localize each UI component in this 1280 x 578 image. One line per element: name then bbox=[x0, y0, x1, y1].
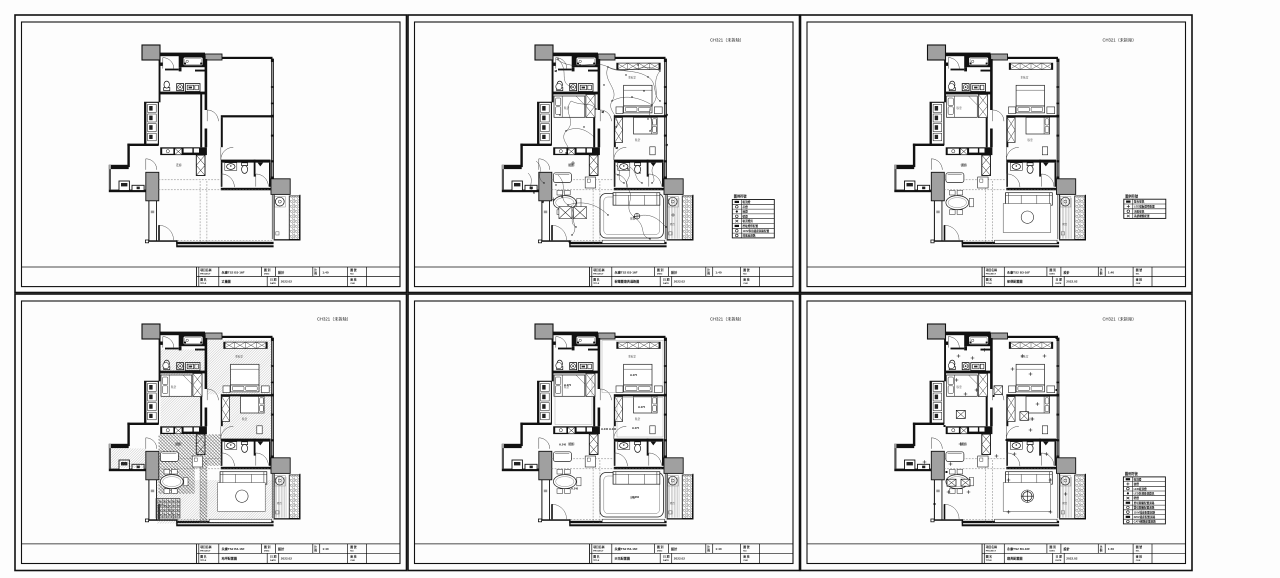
svg-text:吸頂燈: 吸頂燈 bbox=[1134, 477, 1142, 481]
svg-text:設計: 設計 bbox=[278, 269, 285, 274]
svg-text:設計: 設計 bbox=[278, 546, 285, 551]
svg-text:2022.02: 2022.02 bbox=[674, 280, 685, 284]
svg-text:圖 號: 圖 號 bbox=[1136, 545, 1143, 549]
svg-text:LED層板燈帶配置: LED層板燈帶配置 bbox=[1134, 205, 1155, 209]
svg-text:圖 別: 圖 別 bbox=[264, 268, 271, 272]
svg-text:TITLE: TITLE bbox=[593, 283, 600, 285]
svg-text:H.240: H.240 bbox=[609, 427, 617, 431]
svg-text:比: 比 bbox=[1100, 268, 1103, 272]
svg-text:NO.: NO. bbox=[743, 551, 747, 553]
svg-text:系統櫃體配置: 系統櫃體配置 bbox=[1134, 214, 1150, 218]
svg-text:NO.: NO. bbox=[743, 274, 747, 276]
svg-text:比: 比 bbox=[314, 545, 317, 549]
svg-text:審 核: 審 核 bbox=[742, 278, 750, 282]
svg-text:圖 別: 圖 別 bbox=[657, 545, 664, 549]
svg-text:永康TS2 B3-16F: 永康TS2 B3-16F bbox=[221, 546, 245, 551]
svg-text:吸頂燈: 吸頂燈 bbox=[743, 200, 751, 204]
svg-text:H.260: H.260 bbox=[632, 495, 640, 499]
svg-text:圖 號: 圖 號 bbox=[743, 545, 750, 549]
svg-text:項目名稱: 項目名稱 bbox=[200, 268, 211, 272]
svg-text:設計: 設計 bbox=[1064, 269, 1071, 274]
svg-text:嵌燈: 嵌燈 bbox=[1134, 482, 1140, 486]
svg-text:項目名稱: 項目名稱 bbox=[593, 545, 604, 549]
svg-text:TITLE: TITLE bbox=[986, 283, 993, 285]
svg-text:DWG: DWG bbox=[264, 274, 270, 276]
svg-text:110V專用插座迴路配置: 110V專用插座迴路配置 bbox=[743, 229, 770, 233]
svg-text:圖 名: 圖 名 bbox=[593, 278, 600, 282]
svg-text:2022.02: 2022.02 bbox=[281, 557, 292, 561]
svg-text:圖例符號: 圖例符號 bbox=[1125, 471, 1139, 476]
svg-text:NO.: NO. bbox=[350, 551, 354, 553]
svg-text:審 核: 審 核 bbox=[349, 278, 357, 282]
svg-text:圖 別: 圖 別 bbox=[1050, 545, 1057, 549]
svg-text:日 期: 日 期 bbox=[1056, 554, 1063, 558]
svg-text:例: 例 bbox=[707, 549, 710, 553]
svg-text:圖 號: 圖 號 bbox=[350, 545, 357, 549]
svg-text:日 期: 日 期 bbox=[663, 554, 670, 558]
svg-text:H.275: H.275 bbox=[632, 426, 640, 430]
svg-text:比: 比 bbox=[707, 268, 710, 272]
svg-text:比: 比 bbox=[1100, 545, 1103, 549]
svg-text:CHK: CHK bbox=[350, 283, 355, 285]
svg-text:圖 名: 圖 名 bbox=[593, 554, 600, 558]
svg-text:CH321（未拆除）: CH321（未拆除） bbox=[1103, 316, 1137, 323]
svg-text:1:40: 1:40 bbox=[715, 270, 721, 274]
svg-text:圖 名: 圖 名 bbox=[986, 278, 993, 282]
svg-text:審 核: 審 核 bbox=[1135, 554, 1143, 558]
svg-text:H.240: H.240 bbox=[571, 487, 579, 491]
svg-text:項目名稱: 項目名稱 bbox=[593, 268, 604, 272]
svg-text:圖 別: 圖 別 bbox=[264, 545, 271, 549]
svg-text:壁燈: 壁燈 bbox=[1134, 496, 1140, 500]
svg-text:排風扇迴路: 排風扇迴路 bbox=[743, 234, 756, 238]
svg-text:2022.02: 2022.02 bbox=[1066, 557, 1077, 561]
svg-text:DWG: DWG bbox=[1050, 551, 1056, 553]
svg-text:DATE: DATE bbox=[270, 559, 276, 562]
svg-text:CH321（未拆除）: CH321（未拆除） bbox=[710, 37, 744, 44]
svg-text:DATE: DATE bbox=[1056, 559, 1062, 562]
svg-text:永康TS2 B3-16F: 永康TS2 B3-16F bbox=[614, 546, 638, 551]
svg-text:例: 例 bbox=[314, 549, 317, 553]
svg-text:CHK: CHK bbox=[1136, 283, 1141, 285]
svg-text:CHK: CHK bbox=[743, 560, 748, 562]
svg-text:CH321（未拆除）: CH321（未拆除） bbox=[710, 316, 744, 323]
svg-text:天花配置圖: 天花配置圖 bbox=[615, 556, 630, 561]
svg-text:圖 名: 圖 名 bbox=[200, 554, 207, 558]
svg-text:設計: 設計 bbox=[671, 269, 678, 274]
svg-text:CH321（未拆除）: CH321（未拆除） bbox=[1103, 37, 1137, 44]
svg-text:項目名稱: 項目名稱 bbox=[200, 545, 211, 549]
svg-text:項目名稱: 項目名稱 bbox=[986, 545, 997, 549]
svg-text:壁燈: 壁燈 bbox=[743, 214, 749, 218]
svg-text:2022.02: 2022.02 bbox=[281, 280, 292, 284]
svg-text:CHK: CHK bbox=[350, 560, 355, 562]
svg-text:地坪配置圖: 地坪配置圖 bbox=[222, 556, 237, 561]
svg-text:DATE: DATE bbox=[270, 282, 276, 285]
svg-text:活動傢俱: 活動傢俱 bbox=[1134, 209, 1145, 213]
svg-text:DWG: DWG bbox=[657, 274, 663, 276]
svg-text:2022.02: 2022.02 bbox=[674, 557, 685, 561]
svg-text:1:40: 1:40 bbox=[1108, 547, 1114, 551]
svg-text:日 期: 日 期 bbox=[663, 278, 670, 282]
svg-text:例: 例 bbox=[707, 272, 710, 276]
svg-text:1:40: 1:40 bbox=[322, 547, 328, 551]
svg-text:項目名稱: 項目名稱 bbox=[986, 268, 997, 272]
svg-text:PROJECT: PROJECT bbox=[200, 551, 211, 553]
svg-text:H.275: H.275 bbox=[638, 405, 646, 409]
svg-text:CHK: CHK bbox=[743, 283, 748, 285]
svg-text:H.240: H.240 bbox=[601, 427, 609, 431]
svg-text:既有傢俱: 既有傢俱 bbox=[1134, 200, 1145, 204]
svg-text:丈量圖: 丈量圖 bbox=[222, 279, 231, 284]
svg-text:層板燈帶配置: 層板燈帶配置 bbox=[742, 224, 759, 228]
svg-text:嵌燈: 嵌燈 bbox=[743, 210, 749, 214]
svg-text:NO.: NO. bbox=[1136, 551, 1140, 553]
svg-text:圖 名: 圖 名 bbox=[200, 278, 207, 282]
svg-text:圖 號: 圖 號 bbox=[1136, 268, 1143, 272]
svg-text:審 核: 審 核 bbox=[349, 554, 357, 558]
svg-text:日 期: 日 期 bbox=[1056, 278, 1063, 282]
svg-text:設計: 設計 bbox=[1064, 546, 1071, 551]
svg-text:例: 例 bbox=[1100, 272, 1103, 276]
svg-text:圖 別: 圖 別 bbox=[1050, 268, 1057, 272]
svg-text:1:40: 1:40 bbox=[1108, 270, 1114, 274]
svg-text:軌道燈具: 軌道燈具 bbox=[743, 219, 754, 223]
svg-text:2022.02: 2022.02 bbox=[1066, 280, 1077, 284]
svg-text:設計: 設計 bbox=[671, 546, 678, 551]
svg-text:TITLE: TITLE bbox=[593, 560, 600, 562]
svg-text:TITLE: TITLE bbox=[986, 560, 993, 562]
svg-text:NO.: NO. bbox=[1136, 274, 1140, 276]
svg-text:220V插座配置迴路: 220V插座配置迴路 bbox=[1134, 515, 1156, 519]
svg-text:H.275: H.275 bbox=[630, 373, 638, 377]
svg-text:審 核: 審 核 bbox=[742, 554, 750, 558]
svg-text:圖例符號: 圖例符號 bbox=[1125, 193, 1139, 198]
svg-text:吊燈: 吊燈 bbox=[743, 205, 749, 209]
svg-text:永康TS2 B3-16F: 永康TS2 B3-16F bbox=[614, 269, 638, 274]
svg-text:燈具配置圖: 燈具配置圖 bbox=[1007, 556, 1022, 561]
svg-text:H.270: H.270 bbox=[564, 383, 572, 387]
svg-text:DATE: DATE bbox=[663, 559, 669, 562]
svg-text:H.240: H.240 bbox=[559, 443, 567, 447]
svg-text:圖例符號: 圖例符號 bbox=[734, 194, 748, 199]
svg-text:CHK: CHK bbox=[1136, 560, 1141, 562]
svg-text:LED防潮吸頂燈具: LED防潮吸頂燈具 bbox=[1134, 491, 1155, 495]
svg-text:PROJECT: PROJECT bbox=[593, 274, 604, 276]
svg-text:永康TS2 B3-16F: 永康TS2 B3-16F bbox=[221, 269, 245, 274]
svg-text:DATE: DATE bbox=[1056, 282, 1062, 285]
svg-text:例: 例 bbox=[314, 272, 317, 276]
svg-text:永康TS2 B3-16F: 永康TS2 B3-16F bbox=[1006, 269, 1030, 274]
svg-text:1:40: 1:40 bbox=[322, 270, 328, 274]
svg-text:日 期: 日 期 bbox=[270, 278, 277, 282]
svg-text:TITLE: TITLE bbox=[200, 283, 207, 285]
svg-text:圖 名: 圖 名 bbox=[986, 554, 993, 558]
svg-text:110V插座配置迴路: 110V插座配置迴路 bbox=[1134, 510, 1156, 514]
svg-text:例: 例 bbox=[1100, 549, 1103, 553]
svg-text:傢俱配置圖: 傢俱配置圖 bbox=[1006, 279, 1022, 284]
svg-text:PROJECT: PROJECT bbox=[200, 274, 211, 276]
svg-text:日 期: 日 期 bbox=[270, 554, 277, 558]
svg-text:單切開關配置迴路: 單切開關配置迴路 bbox=[1134, 501, 1155, 505]
svg-text:弱電暨燈具迴路圖: 弱電暨燈具迴路圖 bbox=[615, 279, 640, 284]
svg-text:PROJECT: PROJECT bbox=[593, 551, 604, 553]
svg-text:CAT6網路配置迴路: CAT6網路配置迴路 bbox=[1134, 520, 1157, 524]
svg-text:LED吸頂燈: LED吸頂燈 bbox=[1134, 487, 1147, 491]
svg-text:DWG: DWG bbox=[264, 551, 270, 553]
svg-text:1:40: 1:40 bbox=[715, 547, 721, 551]
svg-text:DATE: DATE bbox=[663, 282, 669, 285]
svg-text:圖 號: 圖 號 bbox=[350, 268, 357, 272]
svg-text:比: 比 bbox=[707, 545, 710, 549]
svg-text:NO.: NO. bbox=[350, 274, 354, 276]
svg-text:雙切開關配置迴路: 雙切開關配置迴路 bbox=[1133, 506, 1155, 510]
svg-text:審 核: 審 核 bbox=[1135, 278, 1143, 282]
svg-text:CH321（未拆除）: CH321（未拆除） bbox=[317, 316, 351, 323]
svg-text:DWG: DWG bbox=[1050, 274, 1056, 276]
svg-text:永康TS2 B3-16F: 永康TS2 B3-16F bbox=[1006, 546, 1030, 551]
svg-text:比: 比 bbox=[314, 268, 317, 272]
svg-text:PROJECT: PROJECT bbox=[986, 274, 997, 276]
svg-text:圖 號: 圖 號 bbox=[743, 268, 750, 272]
svg-text:TITLE: TITLE bbox=[200, 560, 207, 562]
svg-text:圖 別: 圖 別 bbox=[657, 268, 664, 272]
svg-text:PROJECT: PROJECT bbox=[986, 551, 997, 553]
svg-text:DWG: DWG bbox=[657, 551, 663, 553]
